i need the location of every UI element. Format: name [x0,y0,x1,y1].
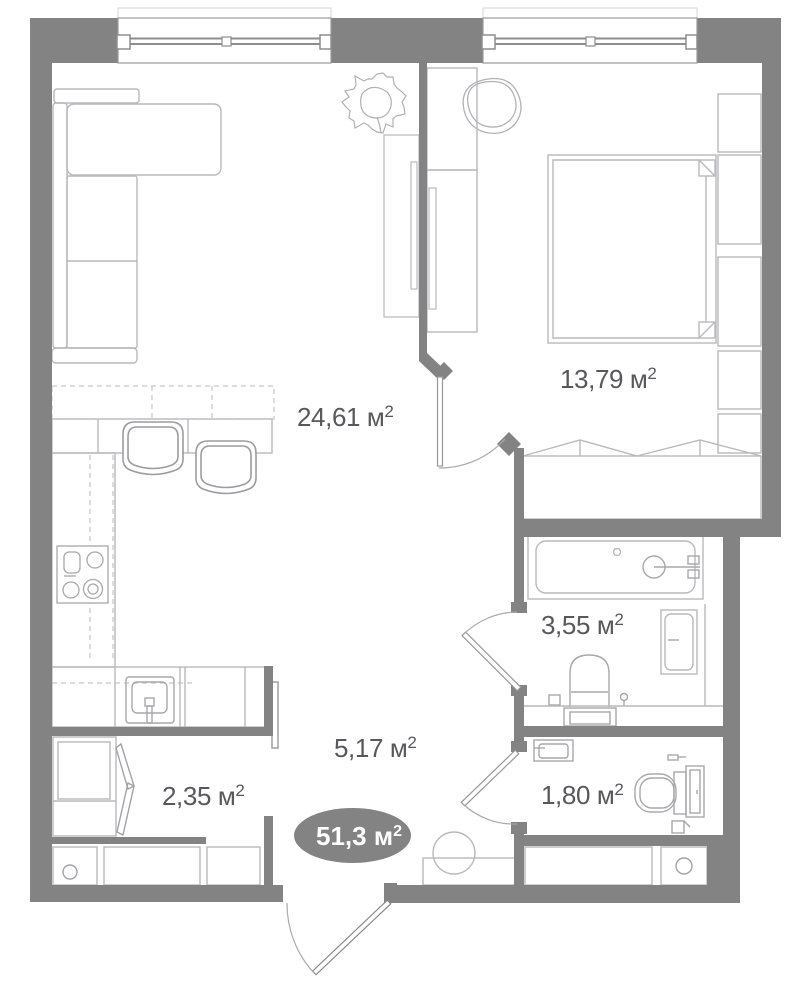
svg-text:24,61 м2: 24,61 м2 [297,402,393,432]
svg-text:51,3 м2: 51,3 м2 [316,821,402,851]
svg-text:13,79 м2: 13,79 м2 [560,364,656,394]
svg-text:1,80 м2: 1,80 м2 [541,780,623,810]
svg-text:5,17 м2: 5,17 м2 [334,733,416,763]
svg-text:2,35 м2: 2,35 м2 [162,781,244,811]
svg-text:3,55 м2: 3,55 м2 [541,610,623,640]
